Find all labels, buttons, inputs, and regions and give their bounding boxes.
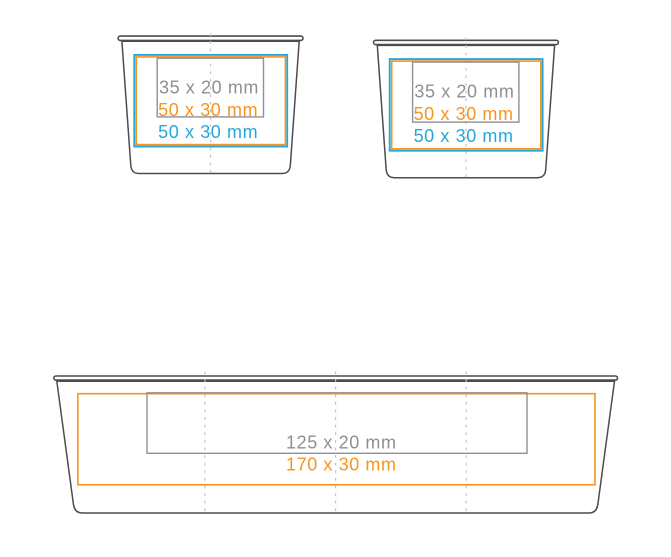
svg-text:125 x 20 mm: 125 x 20 mm (286, 433, 397, 453)
svg-text:170 x 30 mm: 170 x 30 mm (286, 455, 397, 475)
svg-text:50 x 30 mm: 50 x 30 mm (158, 100, 258, 120)
svg-text:35 x 20 mm: 35 x 20 mm (414, 82, 514, 102)
svg-text:50 x 30 mm: 50 x 30 mm (414, 126, 514, 146)
svg-text:35 x 20 mm: 35 x 20 mm (159, 78, 259, 98)
svg-text:50 x 30 mm: 50 x 30 mm (414, 104, 514, 124)
svg-text:50 x 30 mm: 50 x 30 mm (158, 122, 258, 142)
